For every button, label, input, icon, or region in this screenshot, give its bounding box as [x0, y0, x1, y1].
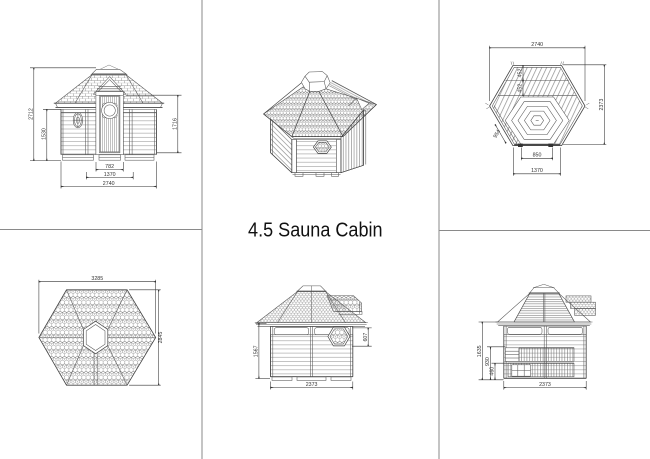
svg-text:2740: 2740 [103, 181, 115, 187]
svg-text:930: 930 [485, 357, 491, 366]
svg-text:460: 460 [490, 367, 496, 376]
svg-text:1530: 1530 [42, 128, 48, 140]
svg-text:452: 452 [518, 69, 524, 78]
svg-text:452: 452 [518, 84, 524, 93]
svg-text:2373: 2373 [539, 382, 551, 388]
svg-text:3285: 3285 [91, 276, 103, 282]
svg-text:1716: 1716 [172, 118, 178, 130]
svg-text:1370: 1370 [104, 172, 116, 178]
svg-text:2712: 2712 [29, 108, 35, 120]
svg-text:1370: 1370 [531, 168, 543, 174]
svg-text:954: 954 [493, 129, 503, 140]
svg-text:2845: 2845 [158, 332, 164, 344]
svg-text:782: 782 [105, 164, 114, 170]
svg-text:2373: 2373 [306, 382, 318, 388]
svg-text:2373: 2373 [599, 99, 605, 111]
svg-text:607: 607 [363, 333, 369, 342]
svg-text:1635: 1635 [477, 345, 483, 357]
svg-text:2740: 2740 [531, 42, 543, 48]
svg-text:1567: 1567 [254, 345, 260, 357]
svg-text:4.5 Sauna Cabin: 4.5 Sauna Cabin [248, 219, 383, 242]
svg-text:850: 850 [533, 153, 542, 159]
